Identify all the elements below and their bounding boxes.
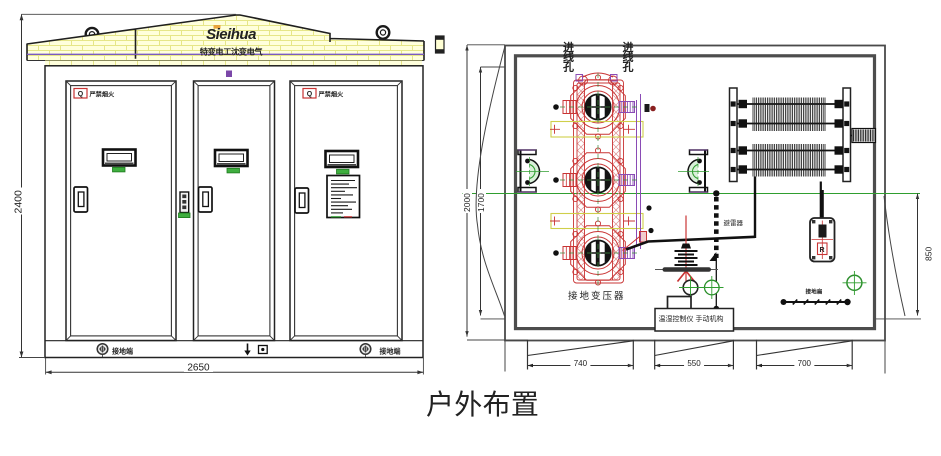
svg-text:2400: 2400 [13, 190, 25, 214]
svg-text:R: R [820, 247, 825, 254]
svg-text:接地变压器: 接地变压器 [568, 290, 626, 302]
svg-text:孔: 孔 [623, 60, 634, 73]
svg-text:1700: 1700 [476, 193, 486, 212]
svg-text:温湿控制仪 手动机构: 温湿控制仪 手动机构 [659, 314, 724, 323]
svg-text:Sieihua: Sieihua [206, 26, 256, 43]
svg-text:2650: 2650 [187, 363, 210, 374]
svg-text:特变电工沈变电气: 特变电工沈变电气 [200, 47, 264, 57]
svg-text:接地端: 接地端 [112, 347, 133, 356]
svg-text:接地扁: 接地扁 [806, 288, 823, 296]
svg-text:避雷器: 避雷器 [724, 218, 744, 227]
svg-text:2000: 2000 [462, 193, 472, 212]
svg-text:550: 550 [687, 359, 701, 368]
svg-text:户外布置: 户外布置 [426, 389, 539, 420]
svg-text:严禁烟火: 严禁烟火 [318, 91, 345, 99]
svg-text:850: 850 [924, 247, 934, 261]
svg-text:740: 740 [574, 359, 588, 368]
svg-text:严禁烟火: 严禁烟火 [89, 91, 116, 99]
svg-text:接地端: 接地端 [380, 347, 401, 356]
svg-text:Q: Q [307, 91, 313, 98]
svg-text:孔: 孔 [563, 60, 574, 73]
svg-text:Q: Q [78, 91, 84, 98]
svg-text:700: 700 [798, 359, 812, 368]
